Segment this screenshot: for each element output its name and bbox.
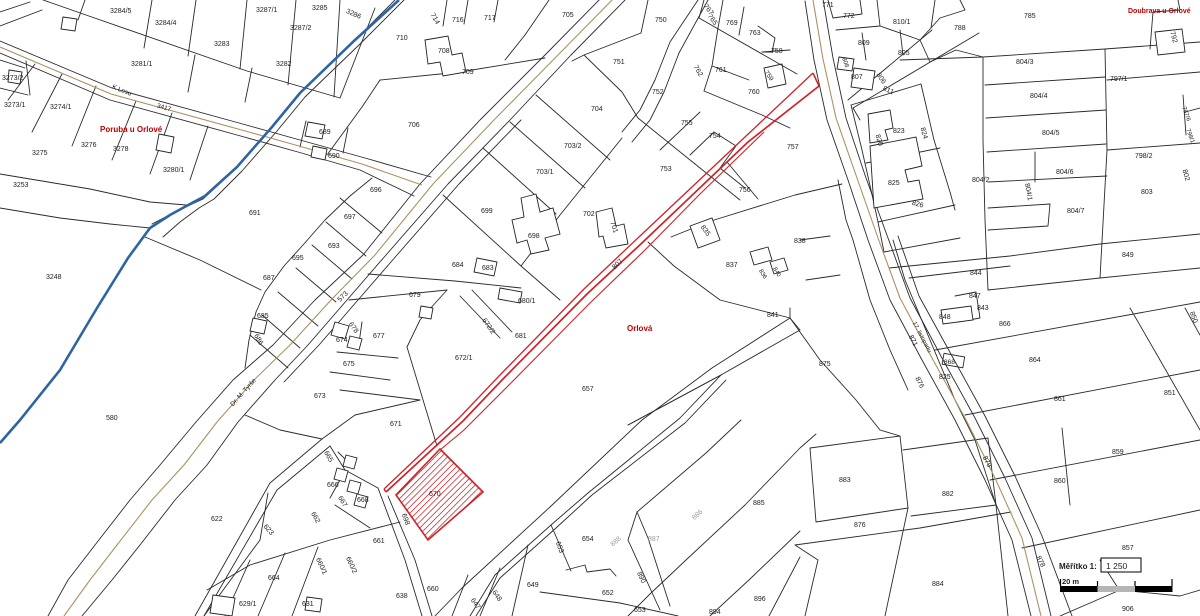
- svg-text:882: 882: [942, 491, 954, 498]
- svg-text:887: 887: [648, 536, 660, 543]
- svg-text:761: 761: [715, 67, 727, 74]
- svg-text:631: 631: [302, 601, 314, 608]
- svg-text:883: 883: [839, 477, 851, 484]
- svg-text:Doubrava u Orlové: Doubrava u Orlové: [1128, 8, 1191, 15]
- svg-text:3274/1: 3274/1: [50, 104, 72, 111]
- svg-text:896: 896: [754, 596, 766, 603]
- svg-text:848: 848: [939, 314, 951, 321]
- svg-text:679: 679: [409, 292, 421, 299]
- svg-text:685: 685: [257, 313, 269, 320]
- svg-text:697: 697: [344, 214, 356, 221]
- svg-text:885: 885: [753, 500, 765, 507]
- svg-text:797/1: 797/1: [1110, 76, 1128, 83]
- svg-text:857: 857: [1122, 545, 1134, 552]
- svg-text:884: 884: [932, 581, 944, 588]
- svg-text:687: 687: [263, 275, 275, 282]
- svg-text:704: 704: [591, 106, 603, 113]
- svg-text:760: 760: [748, 89, 760, 96]
- svg-text:629/1: 629/1: [239, 601, 257, 608]
- svg-text:703/2: 703/2: [564, 143, 582, 150]
- svg-text:859: 859: [1112, 449, 1124, 456]
- svg-text:798/2: 798/2: [1135, 153, 1153, 160]
- svg-text:696: 696: [370, 187, 382, 194]
- svg-text:3283: 3283: [214, 41, 230, 48]
- svg-text:703/1: 703/1: [536, 169, 554, 176]
- svg-text:849: 849: [1122, 252, 1134, 259]
- svg-text:3287/2: 3287/2: [290, 25, 312, 32]
- svg-text:705: 705: [562, 12, 574, 19]
- svg-text:1 250: 1 250: [1106, 561, 1128, 571]
- svg-text:709: 709: [462, 69, 474, 76]
- svg-text:716: 716: [452, 17, 464, 24]
- svg-text:674: 674: [336, 337, 348, 344]
- svg-text:3276: 3276: [81, 142, 97, 149]
- svg-text:851: 851: [1164, 390, 1176, 397]
- svg-text:804/7: 804/7: [1067, 208, 1085, 215]
- svg-text:3273/2: 3273/2: [2, 75, 24, 82]
- svg-text:580: 580: [106, 415, 118, 422]
- svg-text:664: 664: [268, 575, 280, 582]
- svg-text:708: 708: [438, 48, 450, 55]
- svg-text:804/5: 804/5: [1042, 130, 1060, 137]
- svg-text:757: 757: [787, 144, 799, 151]
- svg-text:677: 677: [373, 333, 385, 340]
- svg-text:660: 660: [427, 586, 439, 593]
- svg-text:3273/1: 3273/1: [4, 102, 26, 109]
- svg-text:785: 785: [1024, 13, 1036, 20]
- svg-text:807: 807: [851, 74, 863, 81]
- svg-text:622: 622: [211, 516, 223, 523]
- svg-text:769: 769: [726, 20, 738, 27]
- svg-text:680/1: 680/1: [518, 298, 536, 305]
- svg-text:3285: 3285: [312, 5, 328, 12]
- svg-text:668: 668: [357, 497, 369, 504]
- svg-text:717: 717: [484, 15, 496, 22]
- svg-text:3284/4: 3284/4: [155, 20, 177, 27]
- svg-text:649: 649: [527, 582, 539, 589]
- svg-text:758: 758: [771, 48, 783, 55]
- svg-text:750: 750: [655, 17, 667, 24]
- svg-text:20 m: 20 m: [1062, 577, 1079, 586]
- svg-text:804/6: 804/6: [1056, 169, 1074, 176]
- svg-text:3282: 3282: [276, 61, 292, 68]
- svg-text:876: 876: [854, 522, 866, 529]
- svg-text:657: 657: [582, 386, 594, 393]
- svg-text:693: 693: [328, 243, 340, 250]
- svg-text:691: 691: [249, 210, 261, 217]
- svg-text:754: 754: [709, 133, 721, 140]
- svg-text:671: 671: [390, 421, 402, 428]
- svg-text:864: 864: [1029, 357, 1041, 364]
- svg-text:804/2: 804/2: [972, 177, 990, 184]
- svg-text:661: 661: [373, 538, 385, 545]
- svg-text:3284/5: 3284/5: [110, 8, 132, 15]
- svg-text:860: 860: [1054, 478, 1066, 485]
- svg-text:638: 638: [396, 593, 408, 600]
- svg-text:3275: 3275: [32, 150, 48, 157]
- svg-text:666: 666: [327, 482, 339, 489]
- svg-text:825: 825: [939, 374, 951, 381]
- svg-text:906: 906: [1122, 606, 1134, 613]
- svg-text:684: 684: [452, 262, 464, 269]
- svg-text:670: 670: [429, 491, 441, 498]
- svg-text:3287/1: 3287/1: [256, 7, 278, 14]
- svg-text:838: 838: [794, 238, 806, 245]
- svg-text:866: 866: [999, 321, 1011, 328]
- svg-text:753: 753: [660, 166, 672, 173]
- svg-text:698: 698: [528, 233, 540, 240]
- svg-text:804/4: 804/4: [1030, 93, 1048, 100]
- svg-text:673: 673: [314, 393, 326, 400]
- svg-text:Poruba u Orlové: Poruba u Orlové: [100, 125, 163, 134]
- svg-text:875: 875: [819, 361, 831, 368]
- svg-text:788: 788: [954, 25, 966, 32]
- svg-text:672/1: 672/1: [455, 355, 473, 362]
- svg-text:683: 683: [482, 265, 494, 272]
- svg-text:699: 699: [481, 208, 493, 215]
- svg-text:825: 825: [888, 180, 900, 187]
- svg-text:Orlová: Orlová: [627, 324, 653, 333]
- svg-text:805: 805: [898, 50, 910, 57]
- svg-text:3281/1: 3281/1: [131, 61, 153, 68]
- svg-text:675: 675: [343, 361, 355, 368]
- svg-text:861: 861: [1054, 396, 1066, 403]
- svg-text:706: 706: [408, 122, 420, 129]
- svg-text:690: 690: [328, 153, 340, 160]
- svg-text:654: 654: [582, 536, 594, 543]
- svg-text:803: 803: [1141, 189, 1153, 196]
- svg-text:868: 868: [944, 359, 955, 366]
- svg-text:3278: 3278: [113, 146, 129, 153]
- svg-text:652: 652: [602, 590, 614, 597]
- svg-text:756: 756: [739, 187, 751, 194]
- svg-text:843: 843: [977, 305, 989, 312]
- svg-text:681: 681: [515, 333, 527, 340]
- svg-text:653: 653: [634, 607, 646, 614]
- svg-text:702: 702: [583, 211, 595, 218]
- svg-text:755: 755: [681, 120, 693, 127]
- svg-text:810/1: 810/1: [893, 19, 911, 26]
- svg-text:841: 841: [767, 312, 779, 319]
- svg-text:771: 771: [822, 2, 834, 9]
- svg-text:804/3: 804/3: [1016, 59, 1034, 66]
- svg-text:695: 695: [292, 255, 304, 262]
- svg-text:772: 772: [843, 13, 855, 20]
- svg-text:823: 823: [893, 128, 905, 135]
- svg-text:847: 847: [969, 293, 981, 300]
- svg-text:837: 837: [726, 262, 738, 269]
- svg-text:763: 763: [749, 30, 761, 37]
- svg-text:3280/1: 3280/1: [163, 167, 185, 174]
- svg-text:3253: 3253: [13, 182, 29, 189]
- svg-text:689: 689: [319, 129, 331, 136]
- svg-text:894: 894: [709, 609, 721, 616]
- svg-text:3248: 3248: [46, 274, 62, 281]
- svg-text:844: 844: [970, 270, 982, 277]
- svg-text:809: 809: [858, 40, 870, 47]
- svg-text:710: 710: [396, 35, 408, 42]
- svg-text:Měřítko 1:: Měřítko 1:: [1059, 562, 1097, 571]
- svg-text:751: 751: [613, 59, 625, 66]
- svg-text:752: 752: [652, 89, 664, 96]
